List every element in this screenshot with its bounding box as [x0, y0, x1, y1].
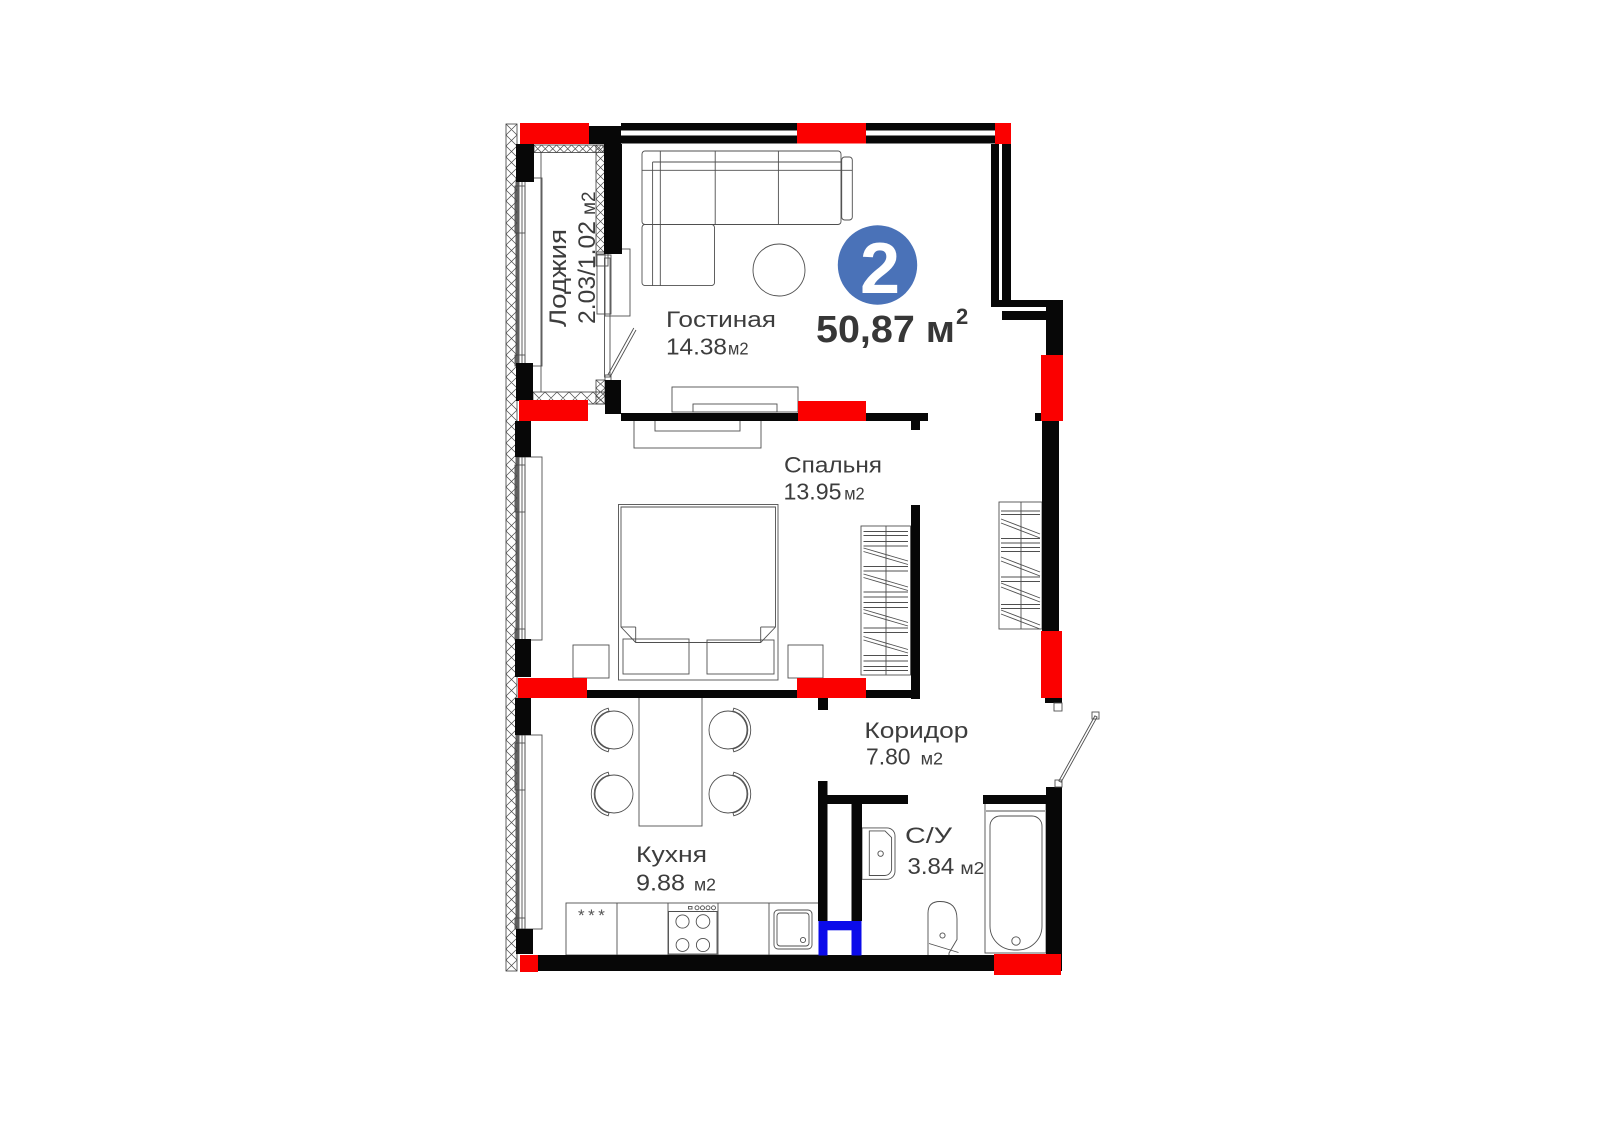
svg-text:Спальня: Спальня [784, 453, 882, 478]
svg-text:С/У: С/У [905, 823, 953, 848]
svg-text:м2: м2 [728, 339, 749, 359]
svg-text:2: 2 [860, 229, 900, 309]
svg-text:7.80: 7.80 [866, 743, 911, 769]
svg-text:13.95: 13.95 [784, 479, 842, 505]
svg-text:9.88: 9.88 [636, 870, 685, 896]
svg-text:Коридор: Коридор [864, 718, 968, 743]
svg-text:***: *** [578, 906, 608, 925]
svg-text:Кухня: Кухня [636, 842, 707, 867]
svg-text:14.38: 14.38 [666, 334, 727, 360]
svg-text:50,87 м: 50,87 м [816, 309, 955, 351]
svg-text:2: 2 [956, 304, 968, 329]
svg-text:3.84: 3.84 [908, 853, 955, 879]
svg-text:Гостиная: Гостиная [666, 307, 776, 332]
svg-text:м2: м2 [579, 191, 600, 215]
svg-text:м2: м2 [844, 484, 864, 504]
svg-text:Лоджия: Лоджия [545, 229, 572, 327]
svg-text:2.03/1.02: 2.03/1.02 [574, 221, 601, 324]
svg-text:м2: м2 [960, 858, 984, 878]
svg-text:м2: м2 [694, 875, 716, 895]
svg-text:м2: м2 [921, 748, 944, 768]
